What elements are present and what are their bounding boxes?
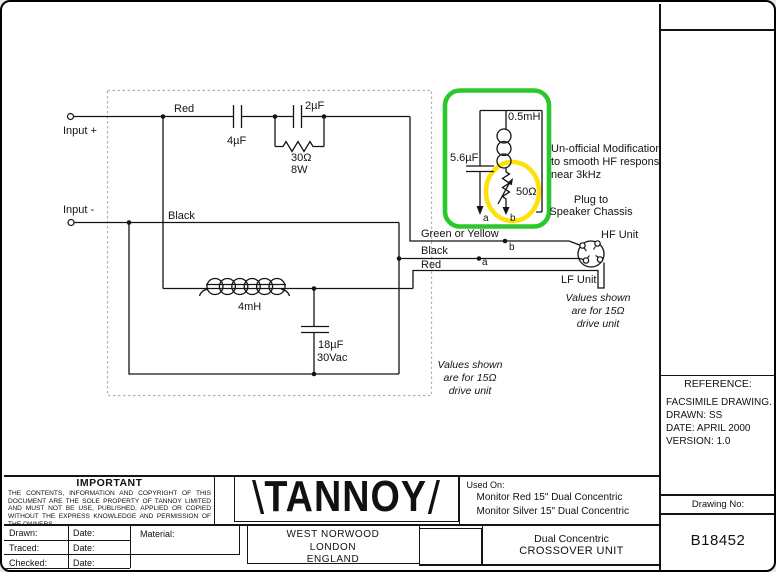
wires — [74, 105, 605, 374]
values-note-hf-line2: are for 15Ω — [572, 305, 625, 317]
logo-wordmark: TANNOY — [265, 474, 428, 522]
capacitor-18uf-voltage-label: 30Vac — [317, 352, 348, 364]
divider-reference-top — [660, 375, 776, 377]
input-minus-terminal — [68, 220, 74, 226]
crossover-schematic: Input + Input - Red Black 4µF 2µF 30Ω 8W… — [2, 2, 660, 476]
used-on-item-2: Monitor Silver 15" Dual Concentric — [477, 505, 660, 519]
drawing-no-label: Drawing No: — [660, 499, 776, 510]
input-minus-label: Input - — [63, 204, 95, 216]
address-line2: LONDON — [248, 542, 419, 555]
point-a-arrow-label: a — [483, 213, 489, 224]
modification-note: Un-official Modification to smooth HF re… — [551, 143, 660, 181]
logo-backslash: \ — [252, 475, 264, 521]
values-note-lf-line2: are for 15Ω — [444, 372, 497, 384]
resistor-50ohm-label: 50Ω — [516, 186, 536, 198]
reference-line2: DRAWN: SS — [666, 409, 776, 422]
checked-label: Checked: — [5, 556, 47, 568]
drawing-no-value: B18452 — [660, 532, 776, 549]
capacitor-4uf — [234, 105, 242, 128]
lf-unit-label: LF Unit — [561, 274, 596, 286]
scale-finish-box: Scale: Finish: — [419, 528, 482, 565]
traced-date-label: Date: — [69, 541, 95, 553]
point-b-arrow-label: b — [510, 213, 516, 224]
drawn-date-label: Date: — [69, 526, 95, 538]
drawing-title-line1: Dual Concentric — [483, 533, 661, 545]
values-note-hf-line3: drive unit — [577, 318, 621, 330]
inductor-4mh-label: 4mH — [238, 301, 261, 313]
inductor-0p5mh-label: 0.5mH — [508, 111, 540, 123]
modification-note-line3: near 3kHz — [551, 169, 601, 181]
address-box: WEST NORWOOD LONDON ENGLAND — [247, 526, 420, 564]
material-label: Material: — [136, 527, 175, 539]
divider-drawing-no-top — [660, 494, 776, 496]
logo-slash: / — [428, 475, 440, 521]
point-b-wire-label: b — [509, 242, 515, 253]
important-notice-box: IMPORTANT THE CONTENTS, INFORMATION AND … — [5, 476, 215, 526]
values-note-lf: Values shown are for 15Ω drive unit — [438, 359, 503, 397]
capacitor-5p6uf-label: 5.6µF — [450, 152, 479, 164]
plug-note-line2: Speaker Chassis — [549, 206, 633, 218]
modification-note-line2: to smooth HF response — [551, 156, 660, 168]
tannoy-logo: \ TANNOY / — [235, 476, 458, 521]
important-body: THE CONTENTS, INFORMATION AND COPYRIGHT … — [5, 489, 214, 529]
address-line1: WEST NORWOOD — [248, 529, 419, 542]
used-on-label: Used On: — [460, 476, 660, 491]
reference-line4: VERSION: 1.0 — [666, 435, 776, 448]
wire-red-top-label: Red — [174, 103, 194, 115]
resistor-30ohm-power-label: 8W — [291, 164, 308, 176]
capacitor-2uf — [294, 105, 302, 128]
drawing-title-box: Dual Concentric CROSSOVER UNIT — [482, 525, 661, 565]
important-heading: IMPORTANT — [5, 477, 214, 489]
capacitor-4uf-label: 4µF — [227, 135, 246, 147]
drawing-title-line2: CROSSOVER UNIT — [483, 545, 661, 557]
reference-line3: DATE: APRIL 2000 — [666, 422, 776, 435]
wire-black-top — [74, 223, 399, 375]
title-box-bottom-line — [419, 564, 660, 566]
divider-drawing-no-bottom — [660, 513, 776, 515]
used-on-box: Used On: Monitor Red 15" Dual Concentric… — [459, 476, 660, 525]
used-on-item-1: Monitor Red 15" Dual Concentric — [477, 491, 660, 505]
divider-rc-top-box — [660, 29, 776, 31]
plug-note-line1: Plug to — [574, 194, 608, 206]
capacitor-2uf-label: 2µF — [305, 100, 324, 112]
wire-black-top-label: Black — [168, 210, 195, 222]
reference-box: REFERENCE: FACSIMILE DRAWING. DRAWN: SS … — [660, 378, 776, 448]
crossover-enclosure-dashed-box — [108, 91, 432, 396]
values-note-lf-line1: Values shown — [438, 359, 503, 371]
reference-heading: REFERENCE: — [660, 378, 776, 390]
modification-note-line1: Un-official Modification — [551, 143, 660, 155]
hf-unit-label: HF Unit — [601, 229, 638, 241]
checked-date-label: Date: — [69, 556, 95, 568]
wire-bottom-rail — [129, 223, 399, 375]
input-plus-terminal — [68, 114, 74, 120]
input-plus-label: Input + — [63, 125, 97, 137]
values-note-hf-line1: Values shown — [566, 292, 631, 304]
capacitor-18uf-label: 18µF — [318, 339, 344, 351]
speaker-plug-connector — [578, 241, 604, 267]
approval-right-divider — [130, 525, 131, 568]
wire-green-yellow-label: Green or Yellow — [421, 228, 499, 240]
traced-label: Traced: — [5, 541, 39, 553]
resistor-30ohm-label: 30Ω — [291, 152, 311, 164]
wire-red-mid-label: Red — [421, 259, 441, 271]
values-note-hf: Values shown are for 15Ω drive unit — [566, 292, 631, 330]
resistor-30ohm — [275, 117, 324, 152]
point-a-wire-label: a — [482, 257, 488, 268]
inductor-4mh — [200, 279, 290, 297]
logo-box: \ TANNOY / — [234, 476, 459, 522]
wire-black-mid-label: Black — [421, 245, 448, 257]
drawn-label: Drawn: — [5, 526, 38, 538]
values-note-lf-line3: drive unit — [449, 385, 493, 397]
approval-bottom-line — [4, 568, 130, 570]
material-right-divider — [239, 525, 240, 554]
drawing-sheet: Input + Input - Red Black 4µF 2µF 30Ω 8W… — [0, 0, 776, 572]
reference-line1: FACSIMILE DRAWING. — [666, 396, 776, 409]
plug-note: Plug to Speaker Chassis — [549, 194, 633, 218]
address-line3: ENGLAND — [248, 554, 419, 567]
